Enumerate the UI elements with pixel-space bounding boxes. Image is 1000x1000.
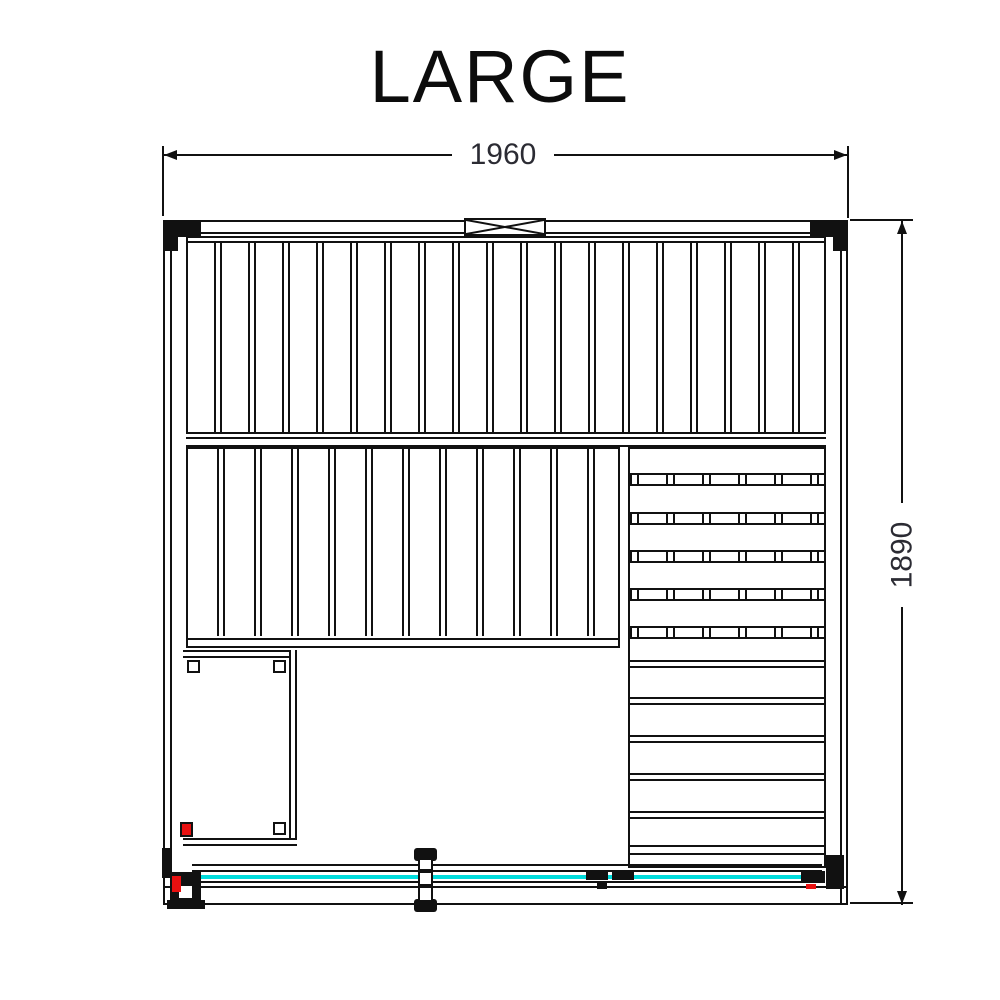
door-stop-marker <box>806 884 816 889</box>
width-dimension-label: 1960 <box>452 138 554 172</box>
door-frame-line <box>192 864 822 866</box>
upper-bench-slats <box>188 243 824 432</box>
bench-mid-rail <box>186 437 826 447</box>
heater-fence-bottom-rail <box>183 838 297 846</box>
door-hinge-hardware <box>162 848 170 878</box>
door-hinge-marker <box>172 876 181 892</box>
corner-post-bottom-right <box>826 855 844 889</box>
side-bench-board-gap <box>630 660 824 668</box>
side-bench-slat-strip <box>630 512 824 525</box>
door-latch <box>597 882 607 889</box>
height-dimension-label: 1890 <box>884 503 920 607</box>
side-bench-slat-strip <box>630 588 824 601</box>
door-glass-panel <box>197 875 807 879</box>
door-handle <box>418 884 433 888</box>
door-frame-line <box>192 870 822 872</box>
door-handle-bar <box>418 858 433 902</box>
side-bench-frame <box>628 447 826 868</box>
side-bench-board-gap <box>630 811 824 819</box>
heater-fence-post <box>273 660 286 673</box>
side-bench-slat-strip <box>630 550 824 563</box>
corner-post-top-right <box>833 221 846 251</box>
vent-crossbox-icon <box>464 218 546 236</box>
heater-fence-post <box>187 660 200 673</box>
heater-fence-post <box>273 822 286 835</box>
side-bench-board-gap <box>630 735 824 743</box>
wall-inner-right <box>840 222 842 903</box>
door-latch <box>586 870 608 880</box>
side-bench-slat-strip <box>630 626 824 639</box>
dimension-arrow-up-icon <box>897 221 907 234</box>
heater-fence-right-rail <box>289 650 297 846</box>
upper-bench-top-rail <box>188 241 824 243</box>
door-frame-line <box>192 881 822 883</box>
wall-inner-left <box>170 222 172 903</box>
heater-fence-top-rail <box>183 650 297 658</box>
side-bench-board-gap <box>630 697 824 705</box>
door-handle <box>418 869 433 873</box>
side-bench-bottom-rail <box>630 845 824 855</box>
lower-bench-slats <box>188 449 618 636</box>
plan-title: LARGE <box>0 34 1000 119</box>
sauna-floor-plan: LARGE 1960 1890 <box>0 0 1000 1000</box>
door-sill-line <box>165 886 846 888</box>
heater-fence-post-marker <box>180 822 193 837</box>
door-stop-hardware <box>801 871 825 883</box>
dimension-arrow-down-icon <box>897 891 907 904</box>
corner-post-top-left <box>165 221 178 251</box>
dimension-arrow-right-icon <box>834 150 847 160</box>
door-hinge-foot <box>167 900 205 909</box>
side-bench-slat-strip <box>630 473 824 486</box>
side-bench-board-gap <box>630 773 824 781</box>
dimension-arrow-left-icon <box>164 150 177 160</box>
extension-line-top-right <box>847 146 849 218</box>
lower-bench-bottom-rail <box>188 638 618 640</box>
door-latch <box>612 870 634 880</box>
